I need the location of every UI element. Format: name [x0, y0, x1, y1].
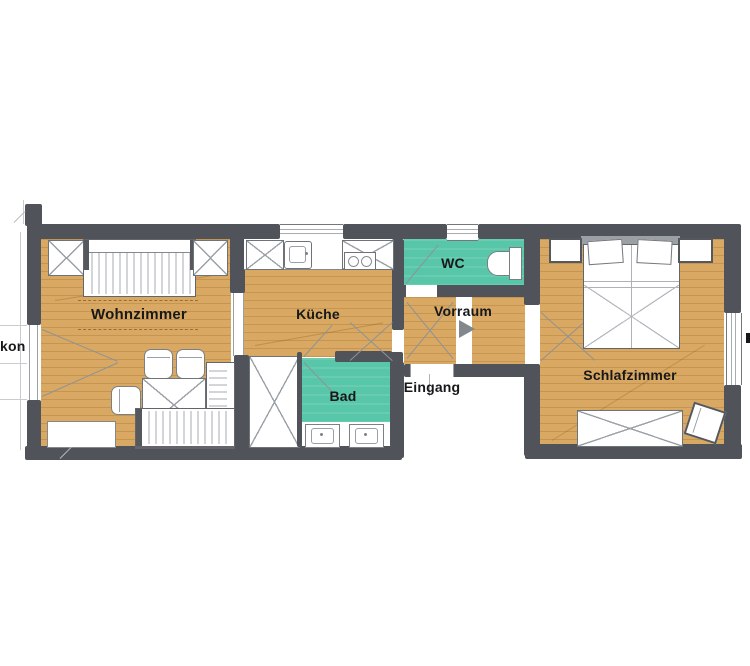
room-label-kueche: Küche: [296, 306, 340, 322]
sofa-backrest: [84, 240, 195, 253]
room-label-wohnzimmer: Wohnzimmer: [91, 306, 187, 323]
chair-seat-line: [147, 357, 170, 358]
livingroom-cabinet: [193, 240, 228, 276]
kitchen-vorraum-wall: [392, 362, 404, 458]
pillow: [587, 239, 624, 265]
left-wall-segment: [27, 224, 41, 325]
livingroom-kitchen-wall: [230, 224, 245, 293]
livingroom-cabinet: [48, 240, 85, 276]
vorraum-bedroom-wall: [524, 364, 540, 456]
extension-line: [0, 399, 27, 400]
sink-basin: [311, 428, 334, 444]
kitchen-sink: [284, 241, 312, 269]
extension-line: [0, 363, 27, 364]
room-label-wc: WC: [441, 255, 465, 271]
sink-drain: [305, 252, 308, 255]
sofa-armrest: [84, 240, 89, 270]
vorraum-bedroom-wall: [524, 224, 540, 305]
stove-burner: [361, 256, 372, 267]
sofa-cushions: [143, 411, 232, 444]
dining-chair: [176, 349, 205, 379]
balcony-door-jamb: [37, 325, 38, 400]
bathroom-sink: [305, 424, 340, 448]
corner-sofa-horizontal: [135, 408, 235, 449]
room-label-balkon-partial: kon: [0, 338, 26, 354]
extension-line: [0, 325, 27, 326]
room-label-bad: Bad: [329, 388, 356, 404]
wardrobe: [577, 410, 683, 447]
kitchen-cabinet: [246, 240, 284, 270]
sofa-cushions: [209, 365, 227, 409]
room-label-schlafzimmer: Schlafzimmer: [583, 367, 676, 383]
sofa-armrest: [136, 409, 142, 446]
top-wall-segment: [343, 224, 447, 239]
sofa: [83, 239, 196, 297]
sink-basin: [289, 246, 306, 263]
toilet-bowl: [487, 251, 511, 276]
right-wall-segment: [724, 385, 741, 456]
bed-sketch-cross: [584, 285, 679, 348]
corner-sofa-vertical: [206, 362, 235, 412]
floor-plan: Wohnzimmer Küche WC Vorraum Eingang Bad …: [0, 0, 750, 666]
stove-burner: [348, 256, 359, 267]
builtin-closet: [249, 356, 300, 448]
balcony-door-jamb: [29, 325, 30, 400]
doorway-jamb: [243, 293, 244, 356]
closet-bad-partition: [297, 352, 302, 447]
blanket-fold-line: [584, 281, 679, 282]
dining-chair: [144, 349, 173, 379]
entry-direction-arrow-icon: [459, 320, 475, 338]
wc-door-opening: [406, 285, 437, 297]
toilet-tank: [509, 247, 522, 280]
bedroom-window: [726, 313, 742, 385]
chair-seat-line: [119, 389, 120, 412]
sideboard: [47, 421, 116, 448]
livingroom-closet-wall: [234, 355, 249, 447]
bathroom-sink: [349, 424, 384, 448]
pillow: [636, 239, 672, 265]
sink-drain: [320, 433, 323, 436]
doorway-jamb: [233, 293, 234, 356]
carpet-dashed-line: [78, 329, 198, 330]
entrance-door-opening: [410, 364, 454, 377]
room-label-eingang: Eingang: [404, 379, 461, 395]
room-label-vorraum: Vorraum: [434, 303, 492, 319]
chair-seat-line: [692, 408, 701, 433]
wc-window: [447, 224, 478, 241]
sink-basin: [355, 428, 378, 444]
sink-drain: [364, 433, 367, 436]
chair-seat-line: [179, 357, 202, 358]
nightstand: [549, 238, 582, 263]
sofa-cushions: [86, 253, 193, 294]
left-wall-corner-stub: [25, 204, 42, 226]
nightstand: [678, 238, 713, 263]
right-label-fragment: [746, 333, 750, 343]
carpet-dashed-line: [78, 300, 198, 301]
right-wall-segment: [724, 224, 741, 313]
kitchen-stove: [344, 252, 376, 270]
